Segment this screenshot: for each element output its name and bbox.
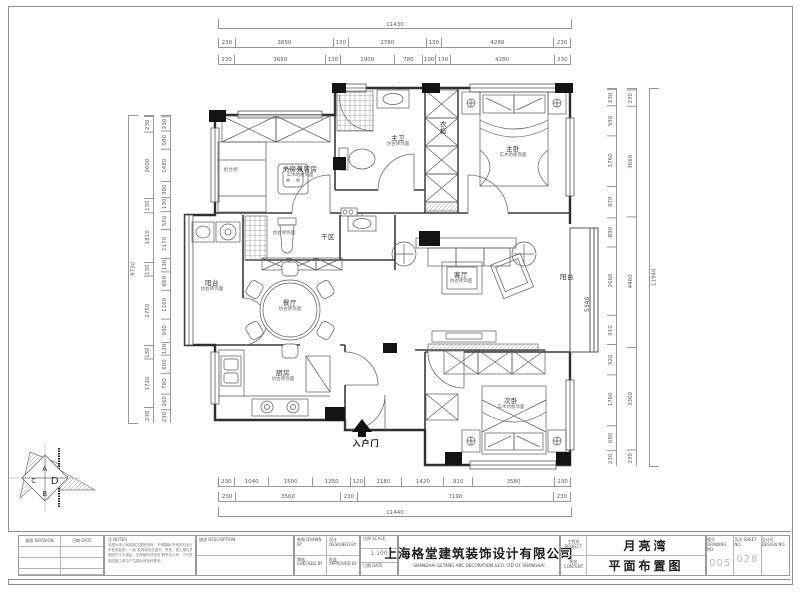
dim-segment: 930 <box>161 319 170 342</box>
dim-segment: 130 <box>144 345 153 359</box>
label-entry-door: 入户门 <box>353 438 380 449</box>
dim-segment: 230 <box>555 477 571 486</box>
dim-segment: 1040 <box>235 477 270 486</box>
revision-header: 修改 REVISION <box>19 536 61 547</box>
dim-segment: 1760 <box>607 374 616 424</box>
drawing-sheet: A C D B 书房兼客房实木地板饰面 组合柜 主卫仿古砖饰面 衣柜 主卧实木地… <box>0 0 800 607</box>
dim-right-mid: 230366044603360230 <box>627 88 637 466</box>
personnel-table: 制图 DRAWN BY 设计 DESIGNED BY 审核 CHECKED BY… <box>294 535 360 576</box>
dim-bottom-overall: 11440 <box>218 507 572 517</box>
dim-top-row1: 230365013027801304280230 <box>218 38 571 48</box>
notes-line: 图纸尺寸无误后，如有疑问请及时 联系本公司，方可施工， <box>108 553 192 558</box>
dim-segment: 2780 <box>349 38 427 47</box>
description-header: 描述 DESCRIPTION <box>197 536 293 556</box>
dim-segment: 130 <box>161 258 170 271</box>
dim-segment: 230 <box>554 492 571 501</box>
dim-segment: 1480 <box>161 149 170 182</box>
title-block: 修改 REVISION 日期 DATE 注 NOTES 本图为本公司绘制之图纸资… <box>8 531 791 580</box>
dim-segment: 130 <box>161 197 170 210</box>
logo-compass <box>10 444 95 512</box>
dim-segment: 600 <box>161 355 170 374</box>
drawing-no-value: 005 <box>709 558 731 569</box>
living-furniture <box>392 238 536 342</box>
dim-right-inner: 230930176097089026609109201760680230 <box>607 88 617 466</box>
dim-segment: 230 <box>144 116 153 132</box>
drawing-title: 平面布置图 <box>587 556 705 576</box>
guest-bath-fixtures <box>278 212 376 253</box>
dim-segment: 890 <box>607 217 616 246</box>
company-name-cn: 上海格堂建筑装饰设计有限公司 <box>385 543 574 562</box>
dim-left-inner: 2305801480380130550117013066011609301306… <box>161 115 171 423</box>
numbers-block: 图号 DRAWING NO. 005 页次 SHEET NO. 028 设计号 … <box>706 535 790 576</box>
columns <box>209 83 573 465</box>
dim-segment: 780 <box>161 373 170 394</box>
dim-segment: 920 <box>607 344 616 374</box>
dim-segment: 130 <box>161 342 170 355</box>
dim-segment: 910 <box>444 477 473 486</box>
dim-segment: 1810 <box>144 212 153 262</box>
dim-segment: 380 <box>161 181 170 197</box>
dim-bottom-row1: 230104015001250120118014209103560230 <box>218 477 571 487</box>
dim-segment: 3650 <box>235 55 326 64</box>
dim-segment: 1420 <box>402 477 444 486</box>
dim-segment: 4280 <box>442 38 555 47</box>
design-no-cell: 设计号 DESIGN NO. <box>762 536 789 575</box>
dim-segment: 2750 <box>144 276 153 345</box>
dim-segment: 230 <box>219 492 236 501</box>
dining-set <box>244 262 335 358</box>
dim-segment: 1900 <box>341 55 396 64</box>
dim-segment: 230 <box>161 409 170 423</box>
dim-segment: 3560 <box>236 492 340 501</box>
dim-segment: 1250 <box>313 477 352 486</box>
dim-segment: 230 <box>627 449 636 466</box>
dim-segment: 3560 <box>473 477 555 486</box>
company-block: 上海格堂建筑装饰设计有限公司 SHANGHAI GETANG ARC DECOR… <box>398 535 560 576</box>
dim-left-outer: 2302600130181013027501301720230 <box>144 115 154 423</box>
drawn-by-label: 制图 DRAWN BY <box>295 536 327 556</box>
dim-segment: 230 <box>555 55 571 64</box>
dim-segment: 780 <box>395 55 423 64</box>
dim-segment: 230 <box>144 407 153 423</box>
notes-line: 若因施工单位产生疑问请及时联系。 <box>108 559 192 564</box>
dim-segment: 4280 <box>451 55 555 64</box>
dim-segment: 130 <box>334 38 348 47</box>
dim-segment: 680 <box>607 425 616 450</box>
kitchen-fixtures <box>218 350 330 416</box>
notes-box: 注 NOTES 本图为本公司绘制之图纸资料，不得翻版 所有权归本公司，未经许 可… <box>104 535 196 576</box>
dim-segment: 1760 <box>607 135 616 185</box>
dim-segment: 4460 <box>627 216 636 346</box>
dim-segment: 230 <box>607 450 616 466</box>
date-header: 日期 DATE <box>61 536 103 547</box>
dim-top-row2: 230365013019007801001304280230 <box>218 55 571 65</box>
dim-segment: 3660 <box>627 106 636 216</box>
dim-segment: 100 <box>423 55 437 64</box>
dim-segment: 970 <box>607 186 616 217</box>
study-furniture <box>218 142 308 212</box>
revision-table: 修改 REVISION 日期 DATE <box>18 535 104 576</box>
dim-segment: 2600 <box>144 132 153 198</box>
project-label: 工程名 PROJECT <box>561 536 587 556</box>
entry-arrow-icon <box>352 419 372 437</box>
dim-segment: 230 <box>554 38 571 47</box>
master-bed <box>462 92 566 186</box>
sheet-no-label: 页次 SHEET NO. <box>734 538 760 548</box>
dim-segment: 230 <box>161 116 170 130</box>
dim-segment: 2660 <box>607 246 616 314</box>
date-label: 日期 DATE <box>361 563 397 575</box>
dim-segment: 1180 <box>365 477 402 486</box>
balcony-left-fixtures <box>192 222 240 242</box>
company-name-en: SHANGHAI GETANG ARC DECORATION &CO. LTD … <box>413 563 544 568</box>
dim-segment: 7190 <box>358 492 554 501</box>
dim-segment: 660 <box>161 271 170 290</box>
dim-segment: 3650 <box>236 38 334 47</box>
dim-segment: 3360 <box>627 347 636 449</box>
dim-segment: 130 <box>427 38 441 47</box>
dim-segment: 130 <box>144 262 153 276</box>
dim-segment: 260 <box>161 394 170 409</box>
cabinets <box>222 90 545 420</box>
dim-left-overall: 9730 <box>128 115 138 424</box>
project-block: 工程名 PROJECT 月亮湾 图名 CONTENT 平面布置图 <box>560 535 706 576</box>
dim-balcony-5340: 5340 <box>584 262 591 312</box>
dim-segment: 130 <box>436 55 450 64</box>
dim-segment: 930 <box>607 105 616 135</box>
dim-segment: 1170 <box>161 229 170 258</box>
dim-segment: 230 <box>341 492 358 501</box>
project-name: 月亮湾 <box>587 536 705 556</box>
dim-segment: 230 <box>219 477 235 486</box>
drawing-no-cell: 图号 DRAWING NO. 005 <box>707 536 734 575</box>
dim-segment: 550 <box>161 211 170 229</box>
dim-segment: 230 <box>627 89 636 106</box>
dim-segment: 130 <box>144 198 153 212</box>
dim-segment: 230 <box>219 55 235 64</box>
bedroom2-bed <box>462 386 566 454</box>
dim-segment: 230 <box>219 38 236 47</box>
dim-right-overall: 11940 <box>649 88 659 467</box>
dim-segment: 230 <box>607 89 616 105</box>
dim-segment: 580 <box>161 130 170 148</box>
designed-by-label: 设计 DESIGNED BY <box>327 536 359 556</box>
content-label: 图名 CONTENT <box>561 556 587 576</box>
dim-top-overall: 11430 <box>218 19 572 29</box>
drawing-no-label: 图号 DRAWING NO. <box>707 538 733 552</box>
checked-by-label: 审核 CHECKED BY <box>295 556 327 576</box>
sheet-no-cell: 页次 SHEET NO. 028 <box>734 536 761 575</box>
dim-segment: 910 <box>607 315 616 345</box>
dim-bottom-row2: 23035602307190230 <box>218 492 571 502</box>
description-table: 描述 DESCRIPTION <box>196 535 294 576</box>
design-no-label: 设计号 DESIGN NO. <box>762 538 789 548</box>
approved-by-label: 批准 APPROVED BY <box>327 556 359 576</box>
dim-segment: 130 <box>326 55 340 64</box>
sheet-no-value: 028 <box>736 554 758 565</box>
dim-segment: 120 <box>351 477 365 486</box>
dim-segment: 1160 <box>161 290 170 319</box>
dim-segment: 1500 <box>269 477 312 486</box>
dim-segment: 1720 <box>144 359 153 408</box>
